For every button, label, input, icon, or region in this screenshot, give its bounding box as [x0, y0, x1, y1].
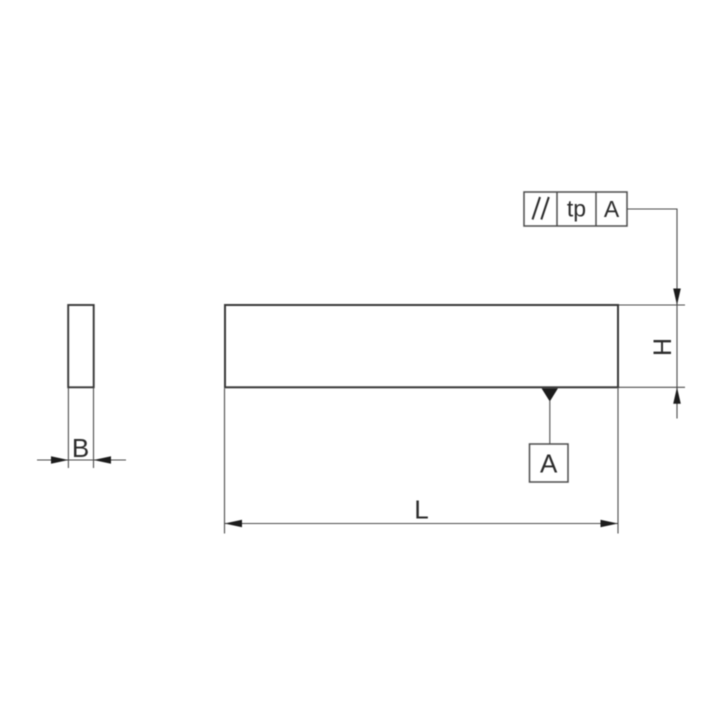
svg-text:H: H [649, 338, 677, 356]
svg-text:A: A [540, 449, 558, 479]
svg-text:B: B [72, 433, 89, 463]
svg-text:tp: tp [567, 196, 586, 222]
svg-text:L: L [414, 495, 428, 525]
svg-text:A: A [604, 196, 620, 222]
